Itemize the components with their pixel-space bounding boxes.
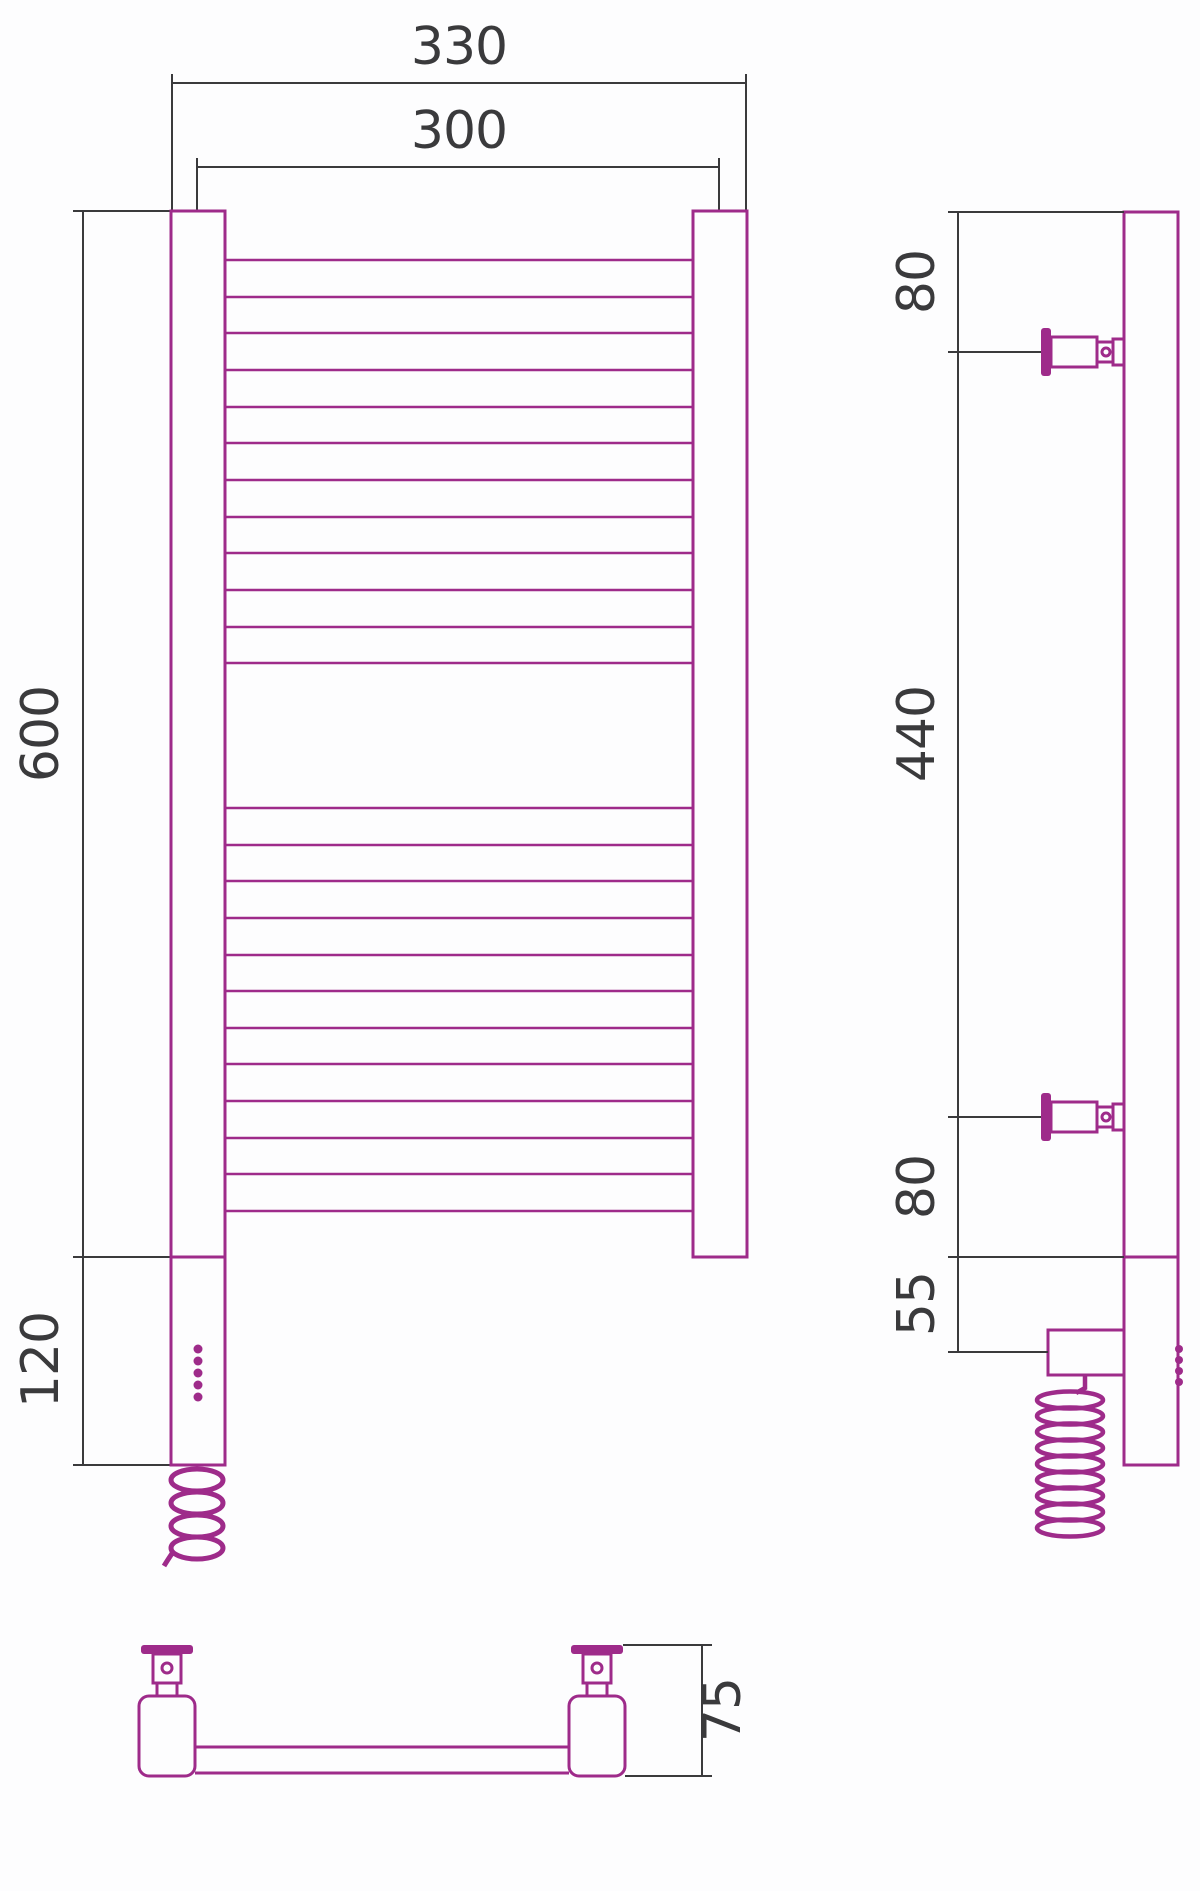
coil-loop xyxy=(171,1469,223,1491)
led-dot xyxy=(194,1369,203,1378)
led-bump xyxy=(1175,1345,1183,1353)
led-bump xyxy=(1175,1367,1183,1375)
rung-group-bottom xyxy=(225,808,693,1211)
rung-group-top xyxy=(225,260,693,663)
coil-loop xyxy=(171,1515,223,1537)
side-heater-housing xyxy=(1124,1257,1178,1465)
left-post xyxy=(171,211,225,1257)
post-section xyxy=(139,1696,195,1776)
bracket-arm xyxy=(583,1654,611,1683)
dim-label-440: 440 xyxy=(887,686,947,782)
bottom-dim-depth: 75 xyxy=(623,1645,753,1776)
bracket-screw xyxy=(592,1663,602,1673)
bracket-clamp xyxy=(1113,1104,1124,1130)
bracket-screw xyxy=(162,1663,172,1673)
bottom-left-assembly xyxy=(139,1645,195,1776)
led-dot xyxy=(194,1357,203,1366)
dim-label-75: 75 xyxy=(693,1678,753,1742)
led-dot xyxy=(194,1345,203,1354)
drawing-sheet: 330 300 600 120 xyxy=(0,0,1200,1891)
dim-label-300: 300 xyxy=(411,101,507,161)
dim-label-55: 55 xyxy=(887,1272,947,1336)
side-dim-chain: 80 440 80 55 xyxy=(887,212,1124,1352)
front-view: 330 300 600 120 xyxy=(11,17,747,1566)
led-indicator-dots xyxy=(194,1345,203,1402)
dim-label-80-top: 80 xyxy=(887,250,947,314)
bracket-screw xyxy=(1102,1113,1110,1121)
dim-label-600: 600 xyxy=(11,686,71,782)
rung-tube xyxy=(195,1747,569,1773)
front-dim-heights: 600 120 xyxy=(11,211,171,1465)
side-post-profile xyxy=(1124,212,1178,1257)
post-section xyxy=(569,1696,625,1776)
led-dot xyxy=(194,1393,203,1402)
power-cable-coil-front xyxy=(164,1469,223,1566)
bottom-view: 75 xyxy=(139,1645,753,1776)
bracket-clamp xyxy=(1113,339,1124,365)
towel-rail-drawing: 330 300 600 120 xyxy=(0,0,1200,1891)
led-bump xyxy=(1175,1356,1183,1364)
led-dot xyxy=(194,1381,203,1390)
side-view: 80 440 80 55 xyxy=(887,212,1183,1537)
dim-label-120: 120 xyxy=(11,1312,71,1408)
power-cable-coil-side xyxy=(1037,1375,1103,1537)
bracket-screw xyxy=(1102,348,1110,356)
coil-loop xyxy=(171,1492,223,1514)
wall-bracket-top xyxy=(1041,328,1124,376)
bracket-arm xyxy=(1051,337,1097,367)
led-bump xyxy=(1175,1378,1183,1386)
bracket-arm xyxy=(1051,1102,1097,1132)
dim-label-80-bottom: 80 xyxy=(887,1155,947,1219)
wall-bracket-bottom xyxy=(1041,1093,1124,1141)
bracket-clamp xyxy=(157,1683,177,1696)
coil-loop xyxy=(171,1537,223,1559)
bracket-clamp xyxy=(587,1683,607,1696)
coil-tail xyxy=(164,1552,173,1566)
terminal-box xyxy=(1048,1330,1124,1375)
bracket-arm xyxy=(153,1654,181,1683)
front-dim-centre-width: 300 xyxy=(197,101,719,211)
right-post xyxy=(693,211,747,1257)
dim-label-330: 330 xyxy=(411,17,507,77)
bottom-right-assembly xyxy=(569,1645,625,1776)
heater-module-front xyxy=(164,1257,225,1566)
